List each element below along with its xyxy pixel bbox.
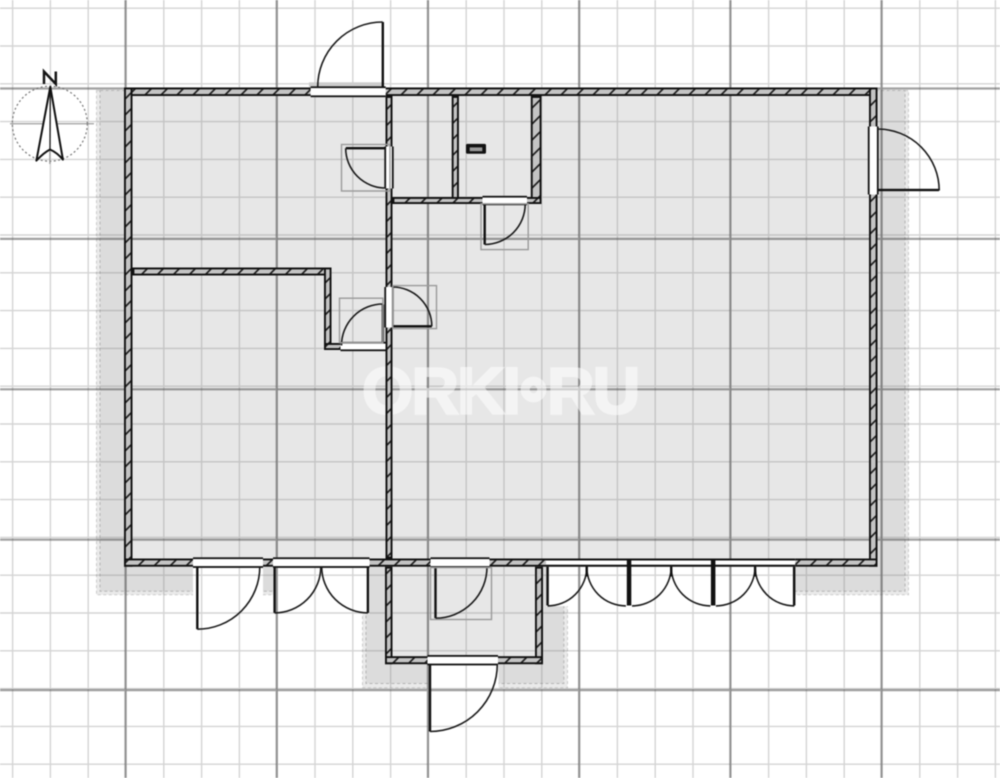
svg-text:RU: RU <box>547 354 638 428</box>
